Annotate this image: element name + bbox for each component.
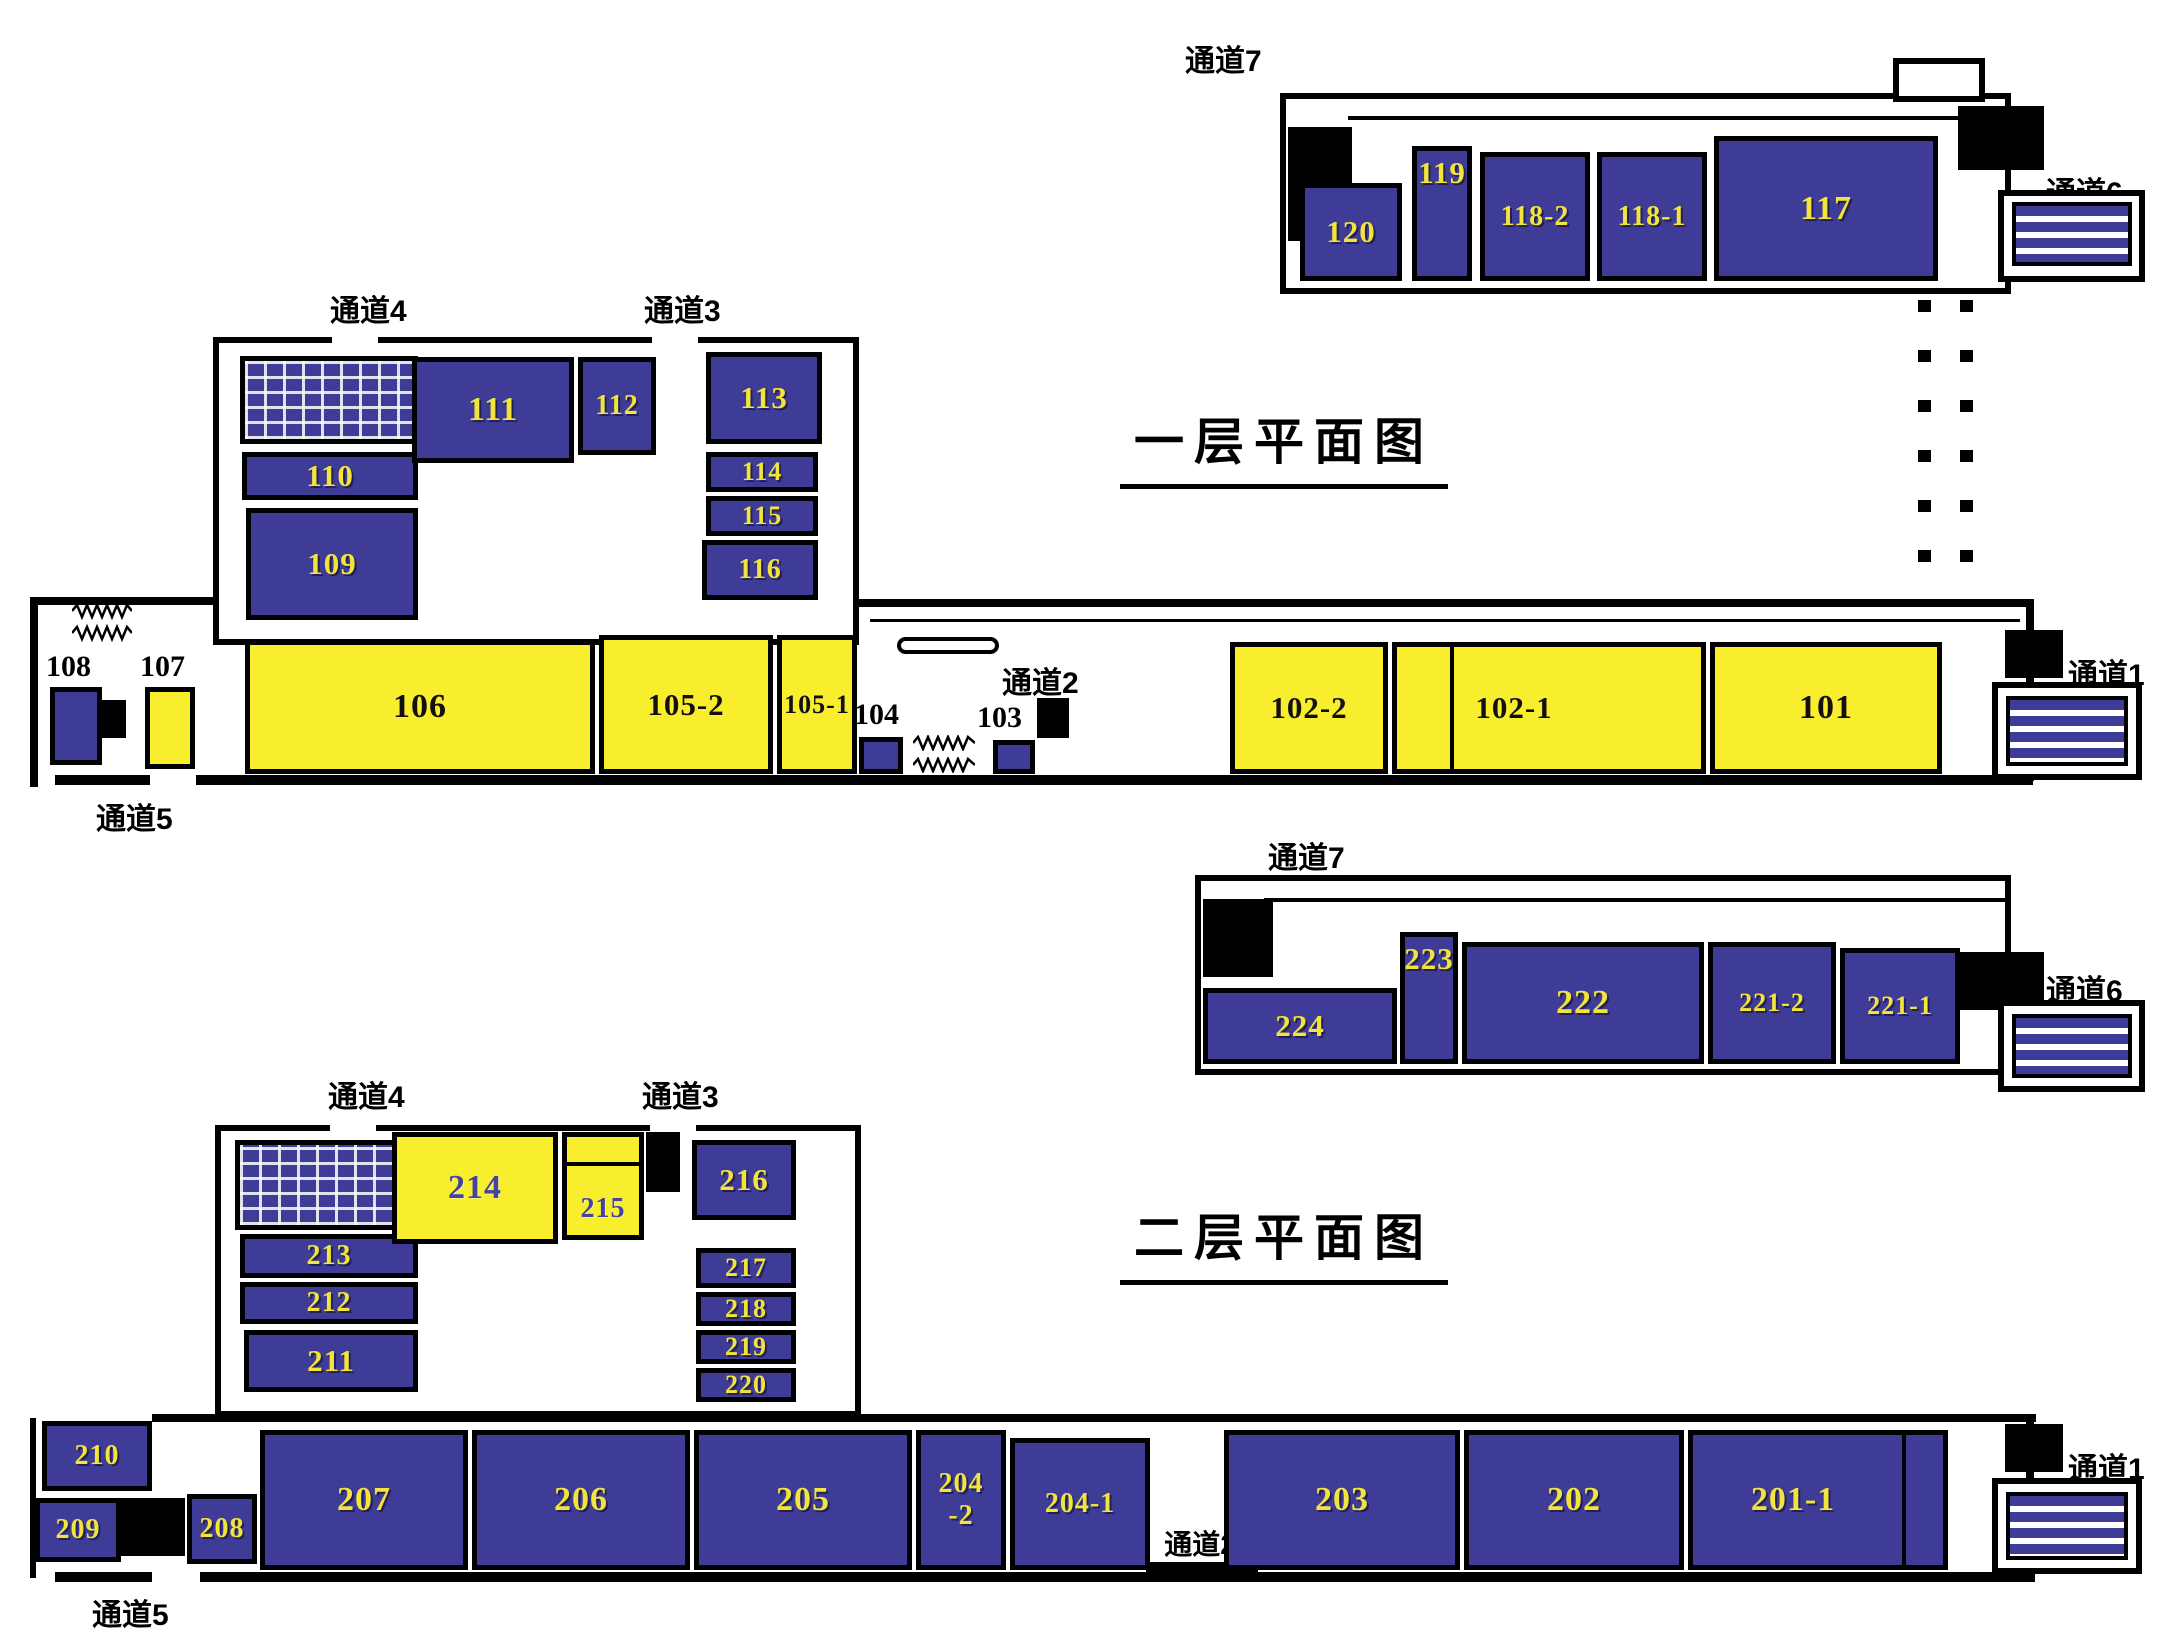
f1-passage-2-label: 通道2 bbox=[1002, 658, 1079, 702]
f1-passage-3-door-gap bbox=[652, 331, 698, 347]
f2-room-201-1-inner-wall bbox=[1902, 1430, 1906, 1570]
room-210-label: 210 bbox=[75, 1440, 120, 1472]
f1-passage-6-stair-block bbox=[1958, 106, 2044, 170]
room-212-label: 212 bbox=[307, 1287, 352, 1319]
f1-passage-6-stairs bbox=[2012, 202, 2132, 266]
room-202: 202 bbox=[1464, 1430, 1684, 1570]
room-224: 224 bbox=[1203, 988, 1397, 1064]
room-104-label: 104 bbox=[854, 698, 899, 732]
room-217-label: 217 bbox=[725, 1253, 767, 1283]
room-214-label: 214 bbox=[448, 1169, 502, 1207]
room-212: 212 bbox=[240, 1282, 418, 1324]
room-204-1: 204-1 bbox=[1010, 1438, 1150, 1570]
room-102-1-label: 102-1 bbox=[1475, 690, 1622, 726]
room-211: 211 bbox=[244, 1330, 418, 1392]
f2-passage-5-wall-block bbox=[121, 1498, 185, 1556]
room-201-1-label: 201-1 bbox=[1751, 1481, 1885, 1519]
room-104 bbox=[859, 737, 903, 774]
room-213-label: 213 bbox=[307, 1240, 352, 1272]
room-119-label: 119 bbox=[1418, 155, 1466, 191]
f2-passage-4-door-gap bbox=[330, 1119, 376, 1135]
room-205-label: 205 bbox=[776, 1481, 830, 1519]
room-118-2: 118-2 bbox=[1480, 152, 1590, 281]
room-103 bbox=[993, 740, 1035, 774]
room-107-label: 107 bbox=[140, 650, 185, 684]
f1-dotted-connector-left bbox=[1918, 300, 1931, 592]
f1-passage-6-entry-bump bbox=[1893, 58, 1985, 102]
f1-room-108-step-wall bbox=[102, 700, 126, 738]
room-105-2-label: 105-2 bbox=[647, 687, 724, 723]
room-208-label: 208 bbox=[200, 1513, 245, 1545]
room-102-2-label: 102-2 bbox=[1270, 690, 1347, 726]
f2-passage-6-stairs bbox=[2012, 1014, 2132, 1078]
f2-passage-7-label: 通道7 bbox=[1268, 833, 1345, 877]
f1-radiator-coil-2 bbox=[72, 624, 132, 642]
room-118-2-label: 118-2 bbox=[1501, 201, 1570, 233]
floor-plan-canvas: 通道7 120 119 118-2 118-1 117 通道6 一层平面图 通道… bbox=[0, 0, 2165, 1645]
room-210: 210 bbox=[42, 1421, 152, 1491]
f2-passage-3-wall-block bbox=[646, 1132, 680, 1192]
room-101: 101 bbox=[1710, 642, 1942, 774]
f1-lobby-table bbox=[897, 637, 999, 654]
room-204-2-label-line2: -2 bbox=[948, 1500, 973, 1532]
room-202-label: 202 bbox=[1547, 1481, 1601, 1519]
f1-dotted-connector-right bbox=[1960, 300, 1973, 592]
room-221-2-label: 221-2 bbox=[1739, 988, 1805, 1018]
room-223-label: 223 bbox=[1404, 941, 1454, 977]
room-204-2-label-line1: 204 bbox=[939, 1468, 984, 1500]
f1-radiator-coil-1 bbox=[72, 602, 132, 620]
room-109: 109 bbox=[246, 508, 418, 620]
room-204-2: 204 -2 bbox=[916, 1430, 1006, 1570]
room-116-label: 116 bbox=[738, 554, 781, 586]
room-111: 111 bbox=[412, 357, 574, 463]
f1-entrance-steps-2 bbox=[913, 757, 975, 773]
f2-right-wing-stair-block bbox=[1203, 899, 1273, 977]
f1-right-wing-corridor-line bbox=[1340, 116, 2005, 120]
room-221-1: 221-1 bbox=[1840, 948, 1960, 1064]
room-219-label: 219 bbox=[725, 1332, 767, 1362]
f1-passage-4-label: 通道4 bbox=[330, 286, 407, 330]
f2-bottom-wall bbox=[55, 1572, 2035, 1582]
room-223: 223 bbox=[1400, 932, 1458, 1064]
room-105-1-label: 105-1 bbox=[784, 690, 850, 720]
room-221-1-label: 221-1 bbox=[1867, 991, 1933, 1021]
room-220: 220 bbox=[696, 1368, 796, 1402]
room-224-label: 224 bbox=[1275, 1008, 1325, 1044]
room-214: 214 bbox=[392, 1132, 558, 1244]
room-221-2: 221-2 bbox=[1708, 942, 1836, 1064]
room-120-label: 120 bbox=[1326, 214, 1376, 250]
room-211-label: 211 bbox=[307, 1343, 355, 1379]
f2-passage-5-door-gap bbox=[152, 1570, 200, 1584]
f1-right-wing-door-slot bbox=[1296, 99, 1348, 125]
room-215: 215 bbox=[562, 1132, 644, 1240]
f1-entrance-steps-1 bbox=[913, 735, 975, 751]
room-114-label: 114 bbox=[742, 457, 783, 487]
room-201-1: 201-1 bbox=[1688, 1430, 1948, 1570]
room-107 bbox=[145, 687, 195, 769]
room-209: 209 bbox=[35, 1498, 121, 1562]
room-108-label: 108 bbox=[46, 650, 91, 684]
f1-wc-stair-room bbox=[240, 356, 418, 444]
room-205: 205 bbox=[694, 1430, 912, 1570]
f1-room-103-wall-block bbox=[1037, 698, 1069, 738]
room-113-label: 113 bbox=[740, 380, 788, 416]
room-222-label: 222 bbox=[1556, 984, 1610, 1022]
room-207: 207 bbox=[260, 1430, 468, 1570]
room-105-2: 105-2 bbox=[599, 635, 773, 774]
room-102-1: 102-1 bbox=[1392, 642, 1706, 774]
f1-passage-5-label: 通道5 bbox=[96, 794, 173, 838]
room-111-label: 111 bbox=[468, 391, 518, 429]
room-118-1: 118-1 bbox=[1597, 152, 1707, 281]
f1-bottom-wall bbox=[55, 775, 2033, 785]
room-103-label: 103 bbox=[977, 701, 1022, 735]
floor2-title: 二层平面图 bbox=[1120, 1198, 1448, 1285]
room-216: 216 bbox=[692, 1140, 796, 1220]
f1-passage-3-label: 通道3 bbox=[644, 286, 721, 330]
room-206: 206 bbox=[472, 1430, 690, 1570]
room-105-1: 105-1 bbox=[777, 635, 857, 774]
room-220-label: 220 bbox=[725, 1370, 767, 1400]
f2-top-wall bbox=[152, 1414, 2036, 1422]
room-102-2: 102-2 bbox=[1230, 642, 1388, 774]
room-106-label: 106 bbox=[393, 688, 447, 726]
f1-passage-1-stairs bbox=[2006, 696, 2128, 766]
room-217: 217 bbox=[696, 1248, 796, 1288]
f1-passage-5-door-gap bbox=[150, 773, 196, 787]
f2-room-215-inner-wall bbox=[566, 1162, 640, 1166]
room-208: 208 bbox=[187, 1494, 257, 1564]
f2-right-wing-corridor-line bbox=[1260, 898, 2005, 902]
room-101-label: 101 bbox=[1799, 689, 1853, 727]
room-222: 222 bbox=[1462, 942, 1704, 1064]
f2-passage-4-label: 通道4 bbox=[328, 1072, 405, 1116]
f2-passage-5-label: 通道5 bbox=[92, 1590, 169, 1634]
room-115: 115 bbox=[706, 496, 818, 536]
room-113: 113 bbox=[706, 352, 822, 444]
room-203: 203 bbox=[1224, 1430, 1460, 1570]
room-203-label: 203 bbox=[1315, 1481, 1369, 1519]
f1-corridor-line bbox=[870, 619, 2020, 622]
room-116: 116 bbox=[702, 540, 818, 600]
f1-passage-4-door-gap bbox=[332, 331, 378, 347]
room-206-label: 206 bbox=[554, 1481, 608, 1519]
room-114: 114 bbox=[706, 452, 818, 492]
room-120: 120 bbox=[1300, 183, 1402, 281]
room-112-label: 112 bbox=[595, 390, 638, 422]
room-118-1-label: 118-1 bbox=[1618, 201, 1687, 233]
room-109-label: 109 bbox=[307, 546, 357, 582]
f2-passage-1-stairs bbox=[2006, 1492, 2128, 1560]
room-215-label: 215 bbox=[581, 1193, 626, 1225]
room-219: 219 bbox=[696, 1330, 796, 1364]
room-108 bbox=[50, 687, 102, 765]
room-204-1-label: 204-1 bbox=[1045, 1488, 1115, 1520]
room-106: 106 bbox=[245, 640, 595, 774]
room-207-label: 207 bbox=[337, 1481, 391, 1519]
room-216-label: 216 bbox=[719, 1162, 769, 1198]
f1-room-102-1-inner-wall bbox=[1450, 642, 1454, 774]
room-117: 117 bbox=[1714, 136, 1938, 281]
room-112: 112 bbox=[578, 357, 656, 455]
f1-left-outer-wall bbox=[30, 597, 38, 787]
room-110-label: 110 bbox=[306, 458, 354, 494]
room-110: 110 bbox=[242, 452, 418, 500]
room-117-label: 117 bbox=[1800, 190, 1852, 228]
room-115-label: 115 bbox=[742, 501, 783, 531]
f2-passage-1-stair-block bbox=[2005, 1424, 2063, 1472]
f1-passage-1-stair-block bbox=[2005, 630, 2063, 678]
room-218-label: 218 bbox=[725, 1294, 767, 1324]
f1-top-wall-right bbox=[855, 599, 2033, 607]
f1-passage-7-label: 通道7 bbox=[1185, 36, 1262, 80]
room-209-label: 209 bbox=[56, 1514, 101, 1546]
f2-passage-3-label: 通道3 bbox=[642, 1072, 719, 1116]
floor1-title: 一层平面图 bbox=[1120, 402, 1448, 489]
room-218: 218 bbox=[696, 1292, 796, 1326]
room-119: 119 bbox=[1412, 146, 1472, 281]
